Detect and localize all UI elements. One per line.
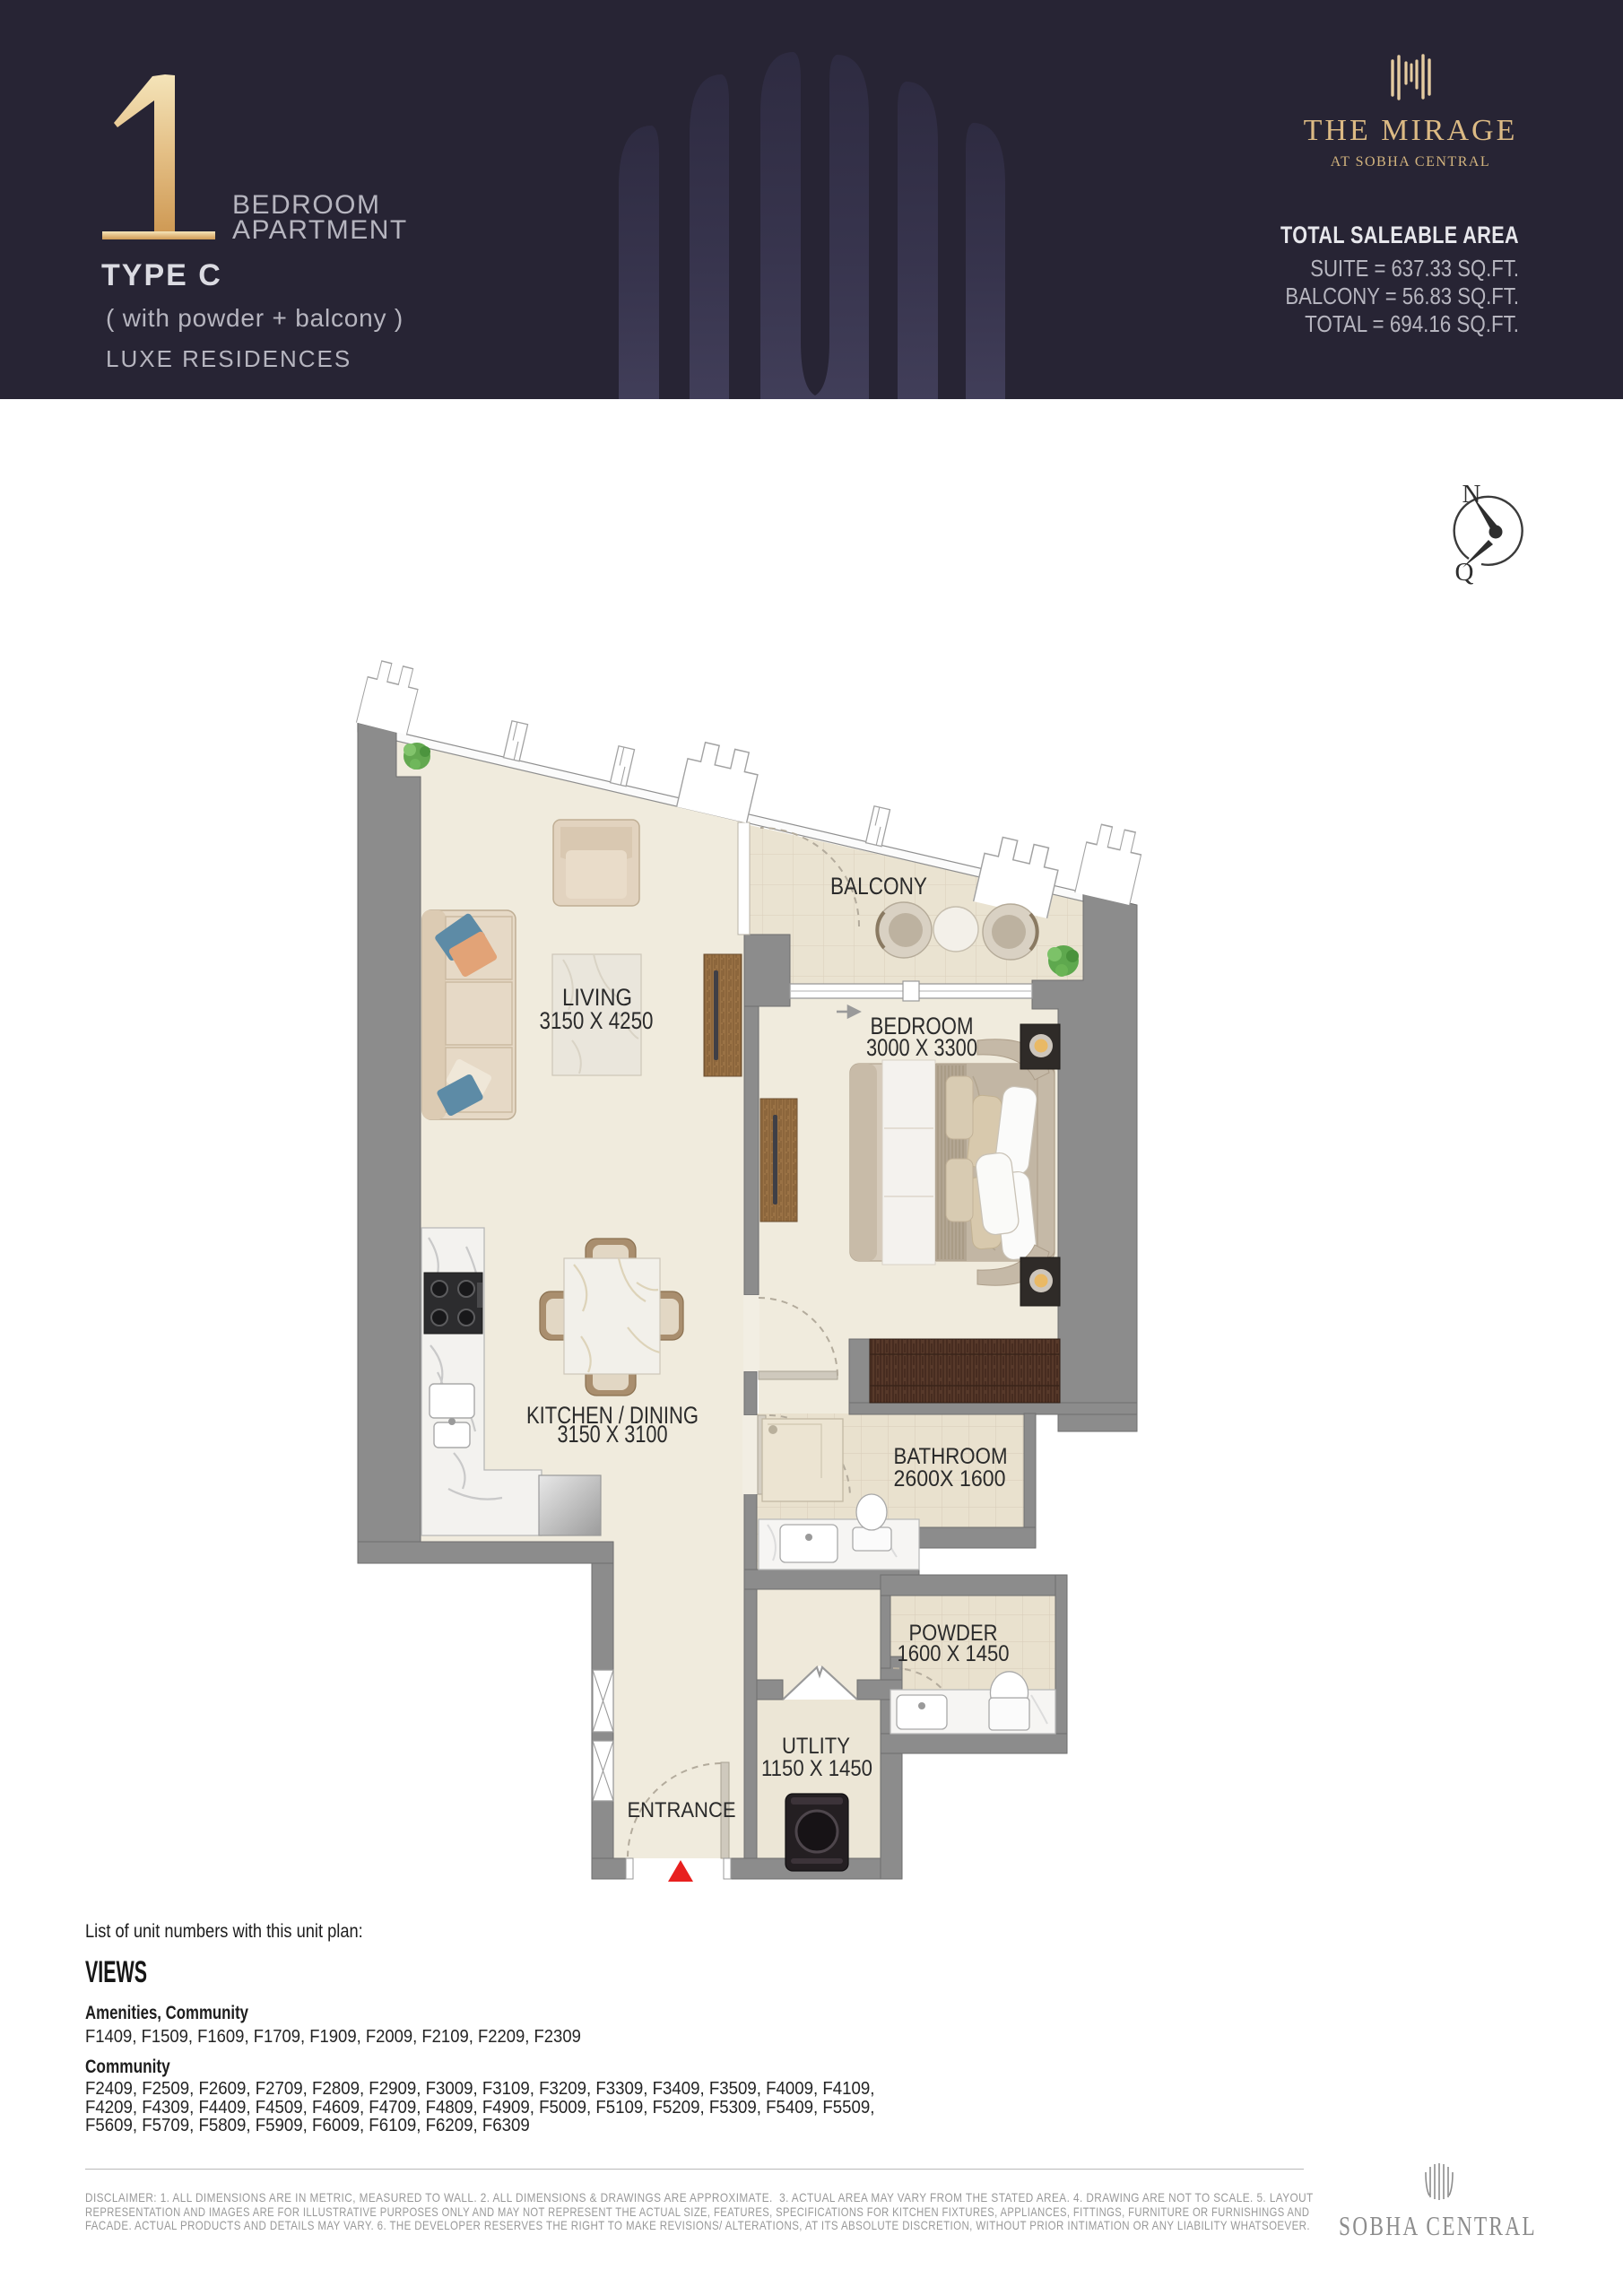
svg-text:3000 X 3300: 3000 X 3300 <box>866 1034 977 1061</box>
svg-text:UTLITY: UTLITY <box>782 1734 850 1759</box>
svg-text:2600X 1600: 2600X 1600 <box>894 1466 1006 1492</box>
svg-text:1150 X 1450: 1150 X 1450 <box>761 1756 872 1781</box>
svg-text:ENTRANCE: ENTRANCE <box>628 1798 736 1822</box>
svg-text:3150 X 3100: 3150 X 3100 <box>558 1421 668 1448</box>
svg-text:1600 X 1450: 1600 X 1450 <box>898 1641 1010 1666</box>
svg-text:BALCONY: BALCONY <box>830 873 927 900</box>
svg-text:N: N <box>1462 480 1481 509</box>
svg-text:3150 X 4250: 3150 X 4250 <box>540 1007 654 1034</box>
svg-text:BATHROOM: BATHROOM <box>894 1444 1008 1469</box>
svg-text:Q: Q <box>1455 558 1474 587</box>
